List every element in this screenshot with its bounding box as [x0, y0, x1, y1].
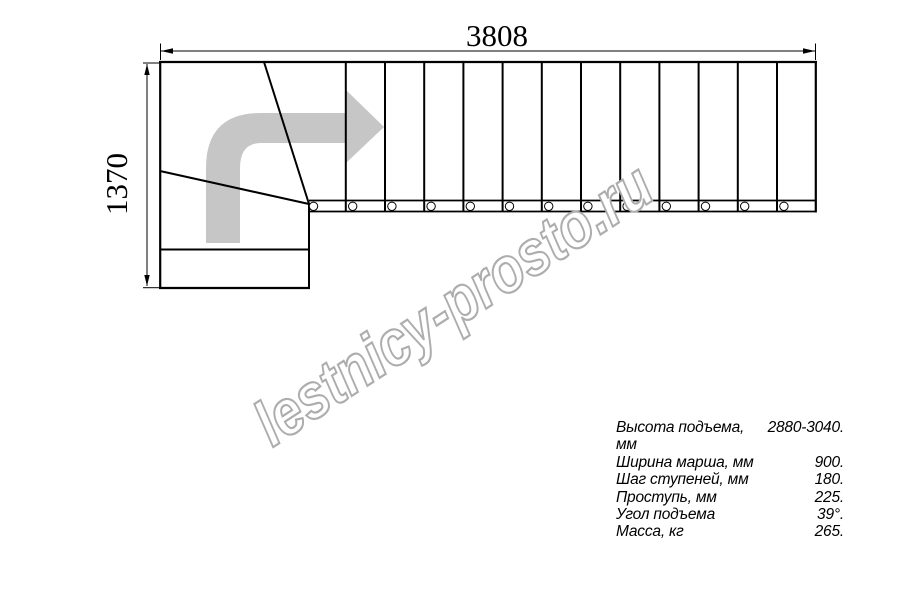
spec-value: 39°. [817, 506, 844, 523]
dim-arrow-bottom-icon [144, 275, 149, 286]
spec-value: 900. [815, 454, 844, 471]
spec-row: Проступь, мм 225. [616, 489, 844, 506]
baluster-circle [780, 202, 788, 210]
spec-table: Высота подъема, мм 2880-3040. Ширина мар… [616, 419, 844, 541]
spec-label: Масса, кг [616, 523, 684, 540]
spec-label: Высота подъема, мм [616, 419, 768, 454]
height-dimension-label: 1370 [99, 153, 134, 215]
spec-label: Шаг ступеней, мм [616, 471, 749, 488]
dim-arrow-right-icon [803, 48, 815, 53]
dim-arrow-left-icon [161, 48, 173, 53]
spec-row: Ширина марша, мм 900. [616, 454, 844, 471]
baluster-circle [741, 202, 749, 210]
dimension-width: 3808 [161, 18, 816, 60]
direction-arrow-icon [206, 90, 384, 243]
width-dimension-label: 3808 [466, 18, 528, 53]
spec-row: Высота подъема, мм 2880-3040. [616, 419, 844, 454]
spec-value: 265. [815, 523, 844, 540]
baluster-circle [309, 202, 317, 210]
spec-label: Ширина марша, мм [616, 454, 754, 471]
baluster-circle [466, 202, 474, 210]
baluster-circle [349, 202, 357, 210]
dimension-height: 1370 [99, 63, 159, 288]
spec-value: 225. [815, 489, 844, 506]
baluster-circle [388, 202, 396, 210]
spec-row: Масса, кг 265. [616, 523, 844, 540]
dim-arrow-top-icon [144, 64, 149, 75]
baluster-circle [505, 202, 513, 210]
spec-value: 2880-3040. [768, 419, 844, 454]
spec-row: Шаг ступеней, мм 180. [616, 471, 844, 488]
baluster-circle [427, 202, 435, 210]
spec-label: Проступь, мм [616, 489, 717, 506]
spec-row: Угол подъема 39°. [616, 506, 844, 523]
baluster-circle [701, 202, 709, 210]
spec-value: 180. [815, 471, 844, 488]
spec-label: Угол подъема [616, 506, 715, 523]
